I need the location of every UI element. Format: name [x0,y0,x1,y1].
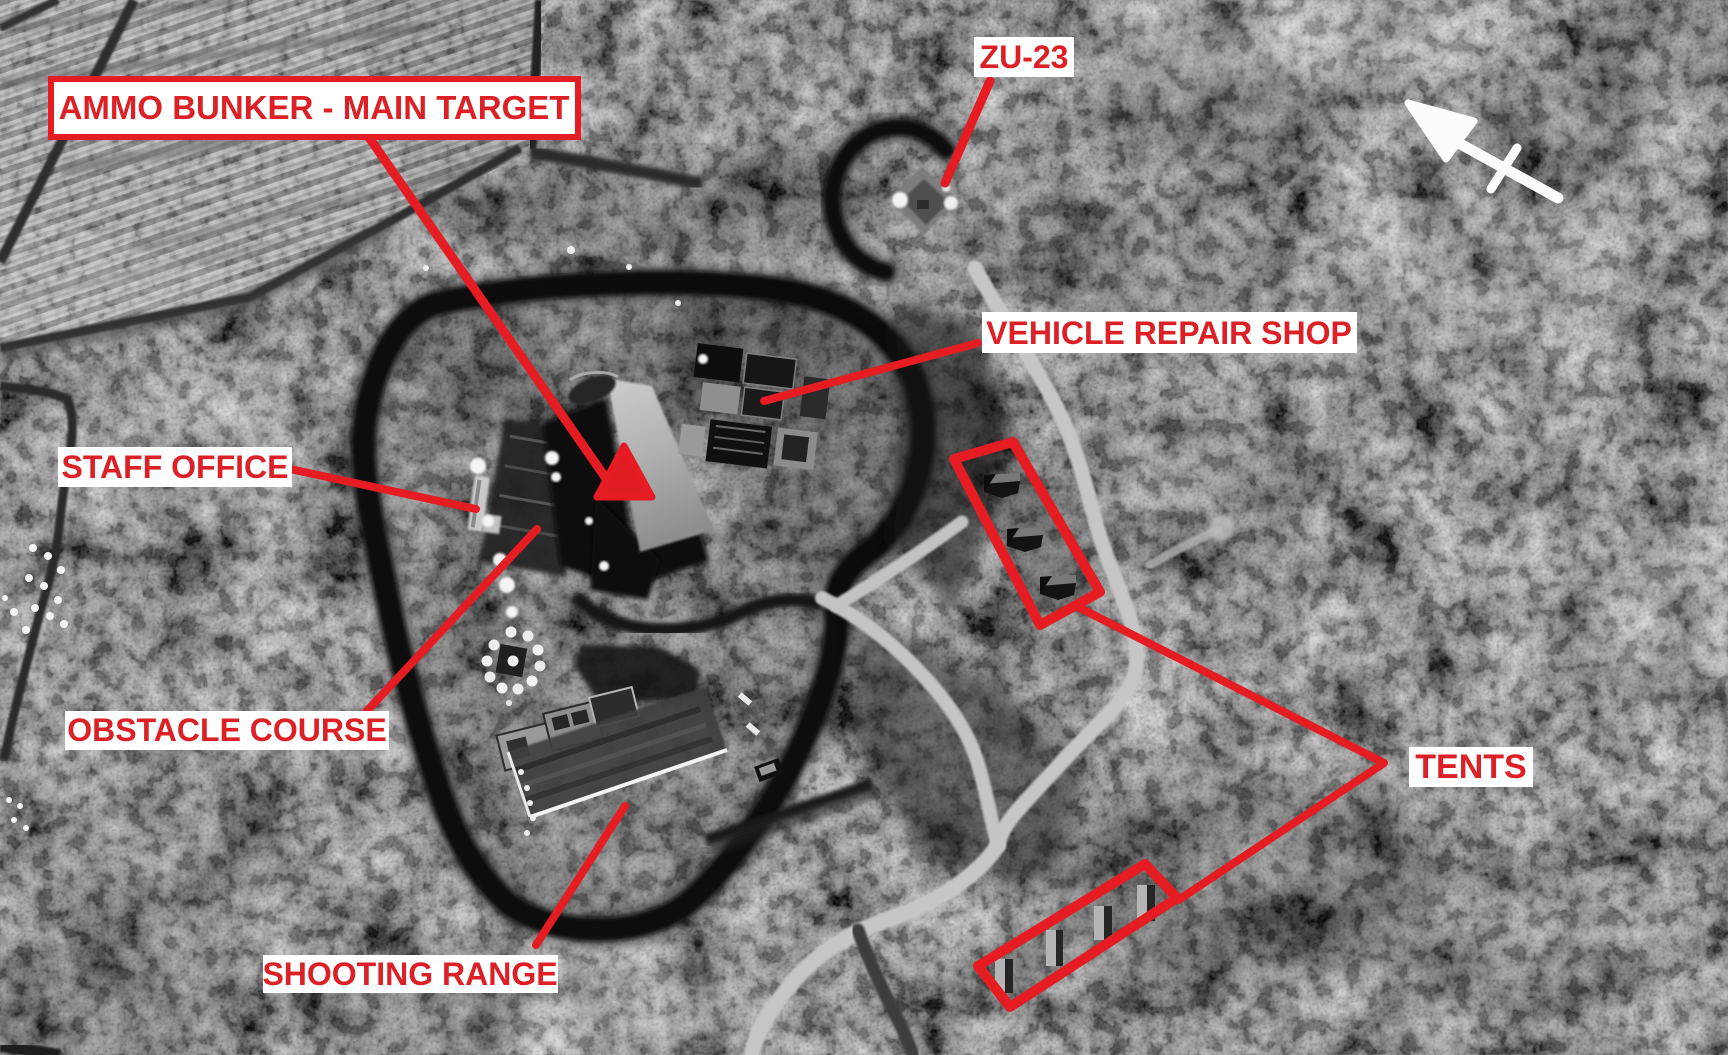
svg-text:STAFF OFFICE: STAFF OFFICE [62,449,289,485]
svg-text:SHOOTING RANGE: SHOOTING RANGE [262,956,557,992]
svg-text:ZU-23: ZU-23 [980,39,1069,75]
svg-text:VEHICLE REPAIR SHOP: VEHICLE REPAIR SHOP [986,315,1352,351]
svg-text:OBSTACLE COURSE: OBSTACLE COURSE [67,712,386,748]
svg-text:AMMO BUNKER - MAIN TARGET: AMMO BUNKER - MAIN TARGET [59,89,570,126]
svg-text:TENTS: TENTS [1415,748,1526,786]
